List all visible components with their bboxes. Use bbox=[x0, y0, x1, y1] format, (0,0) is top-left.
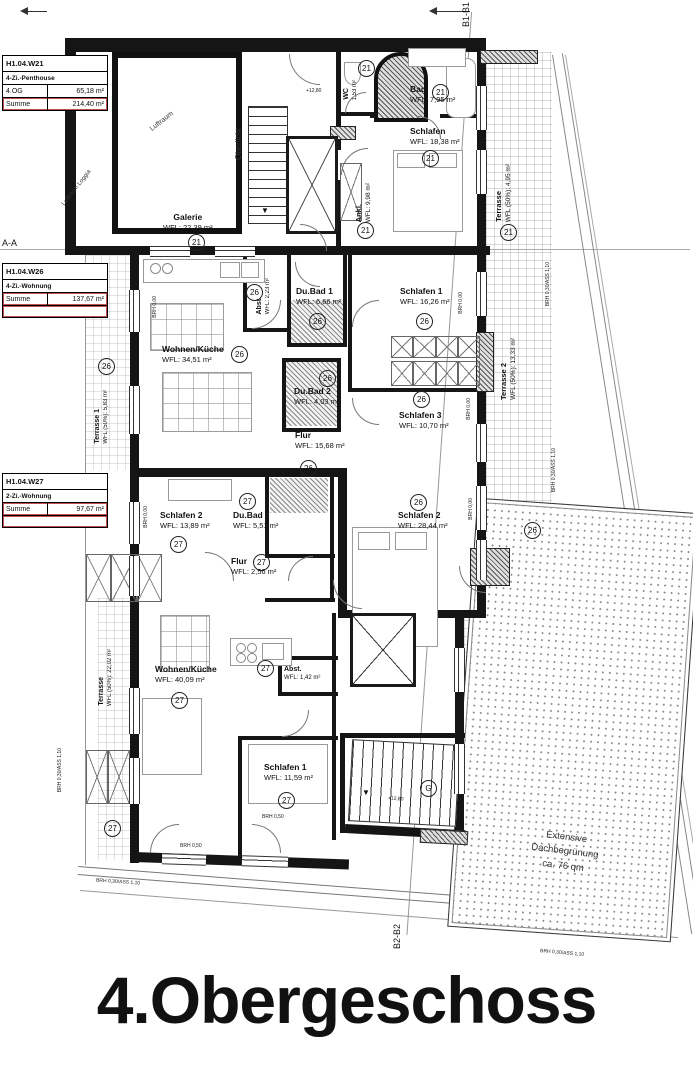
room-label-schlafen1-w26: Schlafen 1 WFL: 16,26 m² bbox=[400, 286, 450, 306]
pillow bbox=[395, 532, 427, 550]
wall bbox=[340, 733, 345, 833]
apartment-id: H1.04.W27 bbox=[3, 474, 107, 490]
door-swing bbox=[205, 552, 234, 581]
apartment-type: 4-Zi.-Penthouse bbox=[3, 72, 107, 85]
room-name: Abst. bbox=[284, 666, 320, 675]
room-name: WC bbox=[343, 88, 350, 100]
unit-badge: 21 bbox=[188, 234, 205, 251]
apartment-info-box-w27: H1.04.W27 2-Zi.-Wohnung Summe97,67 m² bbox=[2, 473, 108, 528]
room-area: WFL: 34,51 m² bbox=[162, 355, 224, 364]
sill-annotation: BRH 0,00 bbox=[466, 398, 472, 420]
stair-direction-arrow: ▼ bbox=[261, 206, 269, 215]
wall bbox=[278, 692, 338, 696]
door-swing bbox=[352, 300, 379, 327]
window bbox=[476, 486, 487, 530]
door-swing bbox=[352, 398, 379, 425]
elevator bbox=[286, 136, 338, 234]
room-area: WFL (50%): 13,33 m² bbox=[510, 338, 517, 400]
elevator bbox=[350, 613, 416, 687]
room-area: WFL: 6,66 m² bbox=[296, 297, 341, 306]
room-area: WFL: 28,44 m² bbox=[398, 521, 448, 530]
room-area: WFL: 11,59 m² bbox=[264, 773, 313, 782]
roof-greening-label: Extensive Dachbegrünung ca. 76 qm bbox=[452, 817, 678, 886]
room-area: WFL: 2,23 m² bbox=[265, 278, 271, 314]
room-area: WFL (50%): 5,83 m² bbox=[103, 390, 109, 444]
void-luftraum-outline bbox=[112, 52, 242, 234]
wardrobe-cell bbox=[413, 336, 435, 358]
section-arrowhead-b1 bbox=[429, 7, 437, 15]
unit-badge: 27 bbox=[278, 792, 295, 809]
skylight-cell bbox=[86, 750, 108, 804]
window bbox=[162, 853, 206, 866]
room-label-wc: WC 1,53 m² bbox=[343, 64, 358, 100]
room-label-dubad1-w26: Du.Bad 1 WFL: 6,66 m² bbox=[296, 286, 341, 306]
unit-badge: 27 bbox=[239, 493, 256, 510]
door-swing bbox=[150, 824, 179, 853]
room-label-schlafen1-w27: Schlafen 1 WFL: 11,59 m² bbox=[264, 762, 313, 782]
room-label-dubad-w27: Du.Bad WFL: 5,51 m² bbox=[233, 510, 278, 530]
sill-annotation: BRH 0,00 bbox=[143, 506, 149, 528]
info-row-value: 137,67 m² bbox=[48, 293, 107, 305]
floor-plan-drawing: B1-B1 A-A B2-B2 H1.04.W21 4-Zi.-Penthous… bbox=[0, 0, 693, 1080]
section-marker-b2: B2-B2 bbox=[392, 924, 402, 949]
unit-badge: 26 bbox=[231, 346, 248, 363]
room-area: WFL: 4,03 m² bbox=[294, 397, 339, 406]
apartment-info-box-w21: H1.04.W21 4-Zi.-Penthouse 4.OG65,18 m² S… bbox=[2, 55, 108, 111]
room-name: Du.Bad bbox=[233, 510, 278, 521]
wall bbox=[336, 38, 341, 116]
unit-badge: 21 bbox=[358, 60, 375, 77]
apartment-type: 4-Zi.-Wohnung bbox=[3, 280, 107, 293]
room-name: Du.Bad 2 bbox=[294, 386, 339, 397]
wardrobe-cell bbox=[436, 361, 458, 386]
room-label-terrasse1-w26: Terrasse 1 WFL (50%): 5,83 m² bbox=[94, 378, 109, 444]
wall bbox=[332, 613, 336, 703]
room-name: Terrasse bbox=[494, 191, 503, 222]
info-row-label: Summe bbox=[3, 503, 48, 515]
room-name: Terrasse 1 bbox=[94, 409, 101, 444]
apartment-info-box-w26: H1.04.W26 4-Zi.-Wohnung Summe137,67 m² bbox=[2, 263, 108, 318]
wall bbox=[130, 255, 139, 473]
room-name: Flur bbox=[295, 430, 345, 441]
room-label-wohnen-w26: Wohnen/Küche WFL: 34,51 m² bbox=[162, 344, 224, 364]
sill-annotation: BRH 0,00 bbox=[458, 292, 464, 314]
door-swing bbox=[282, 710, 309, 737]
zone-label-oberlicht: Oberlicht bbox=[234, 128, 243, 160]
parapet-annotation: BRH 0,30/ASS 1,10 bbox=[551, 448, 557, 492]
window bbox=[476, 272, 487, 316]
sill-annotation: BRH 0,00 bbox=[152, 296, 158, 318]
room-label-dubad2-w26: Du.Bad 2 WFL: 4,03 m² bbox=[294, 386, 339, 406]
dining-table bbox=[162, 372, 252, 432]
unit-badge: 26 bbox=[98, 358, 115, 375]
room-name: Wohnen/Küche bbox=[155, 664, 217, 675]
wall bbox=[332, 700, 336, 840]
skylight-cell bbox=[108, 750, 130, 804]
sink bbox=[162, 263, 173, 274]
room-area: 1,53 m² bbox=[352, 80, 358, 100]
level-annotation: +12,80 bbox=[306, 88, 321, 94]
window bbox=[242, 855, 288, 868]
unit-badge: 21 bbox=[432, 84, 449, 101]
section-marker-a: A-A bbox=[2, 238, 17, 248]
window bbox=[476, 150, 487, 194]
wall bbox=[343, 255, 347, 347]
info-row-value: 65,18 m² bbox=[48, 85, 107, 97]
room-label-terrasse2-w26: Terrasse 2 WFL (50%): 13,33 m² bbox=[499, 325, 517, 400]
info-row-empty bbox=[3, 516, 107, 527]
room-area: WFL: 22,39 m² bbox=[163, 223, 213, 232]
room-area: WFL: 9,98 m² bbox=[365, 183, 372, 222]
window bbox=[129, 688, 140, 734]
skylight-boxes bbox=[86, 554, 162, 602]
level-annotation: +12,80 bbox=[388, 795, 404, 802]
stove-burner bbox=[247, 643, 257, 653]
window bbox=[476, 424, 487, 462]
room-area: WFL (50%): 22,02 m² bbox=[107, 649, 113, 706]
room-area: WFL: 5,51 m² bbox=[233, 521, 278, 530]
sill-annotation: BRH 0,00 bbox=[468, 498, 474, 520]
room-label-ankleide: Ankl. WFL: 9,98 m² bbox=[354, 170, 372, 222]
sofa bbox=[142, 698, 202, 775]
info-row-label: Summe bbox=[3, 98, 48, 110]
door-swing bbox=[252, 824, 281, 853]
room-area: WFL: 10,70 m² bbox=[399, 421, 449, 430]
room-name: Du.Bad 1 bbox=[296, 286, 341, 297]
room-label-terrasse-w27: Terrasse WFL (50%): 22,02 m² bbox=[98, 636, 113, 706]
window bbox=[129, 386, 140, 434]
unit-badge: 26 bbox=[319, 370, 336, 387]
pillow bbox=[358, 532, 390, 550]
sink bbox=[262, 643, 284, 660]
info-row-empty bbox=[3, 306, 107, 317]
door-swing bbox=[289, 54, 320, 85]
unit-badge: 27 bbox=[253, 554, 270, 571]
drawing-title: 4.Obergeschoss bbox=[0, 962, 693, 1038]
room-area: WFL (50%): 4,95 m² bbox=[505, 164, 512, 222]
parapet-annotation: BRH 0,30/ASS 1,10 bbox=[57, 748, 63, 792]
unit-badge: 26 bbox=[524, 522, 541, 539]
window bbox=[129, 502, 140, 544]
window bbox=[129, 556, 140, 596]
unit-badge: 26 bbox=[246, 284, 263, 301]
room-area: WFL: 13,89 m² bbox=[160, 521, 210, 530]
pillow bbox=[397, 153, 425, 168]
wardrobe bbox=[391, 336, 480, 358]
room-label-schlafen2-w26: Schlafen 2 WFL: 28,44 m² bbox=[398, 510, 448, 530]
door-swing bbox=[288, 556, 313, 581]
window bbox=[150, 246, 190, 257]
room-area: WFL: 1,42 m² bbox=[284, 675, 320, 683]
wall bbox=[238, 736, 242, 858]
room-area: WFL: 2,56 m² bbox=[231, 567, 276, 576]
wall bbox=[238, 736, 338, 740]
wardrobe-cell bbox=[436, 336, 458, 358]
info-row-value: 97,67 m² bbox=[48, 503, 107, 515]
info-row-value: 214,40 m² bbox=[48, 98, 107, 110]
room-label-schlafen-penthouse: Schlafen WFL: 18,38 m² bbox=[410, 126, 460, 146]
wardrobe-cell bbox=[458, 361, 480, 386]
wall-hatched bbox=[420, 829, 469, 845]
room-name: Schlafen 3 bbox=[399, 410, 449, 421]
wardrobe-sideboard bbox=[168, 479, 232, 501]
staircase bbox=[348, 739, 460, 827]
info-row-label: 4.OG bbox=[3, 85, 48, 97]
room-area: WFL: 16,26 m² bbox=[400, 297, 450, 306]
window bbox=[215, 246, 255, 257]
stair-direction-arrow: ▼ bbox=[362, 788, 370, 797]
room-label-schlafen3-w26: Schlafen 3 WFL: 10,70 m² bbox=[399, 410, 449, 430]
wall bbox=[243, 328, 291, 332]
skylight-cell bbox=[137, 554, 162, 602]
unit-badge: 27 bbox=[171, 692, 188, 709]
unit-badge: 21 bbox=[422, 150, 439, 167]
room-name: Schlafen 2 bbox=[160, 510, 210, 521]
room-label-flur-w26: Flur WFL: 15,68 m² bbox=[295, 430, 345, 450]
unit-badge: 27 bbox=[170, 536, 187, 553]
room-label-schlafen2-w27: Schlafen 2 WFL: 13,89 m² bbox=[160, 510, 210, 530]
door-swing bbox=[295, 262, 320, 287]
wardrobe bbox=[391, 361, 480, 386]
room-label-abstellraum-w27: Abst. WFL: 1,42 m² bbox=[284, 666, 320, 682]
sill-annotation: BRH 0,50 bbox=[262, 814, 284, 820]
window bbox=[129, 758, 140, 804]
stove-burner bbox=[236, 643, 246, 653]
skylight-boxes bbox=[86, 750, 130, 804]
room-name: Schlafen 1 bbox=[264, 762, 313, 773]
sink bbox=[150, 263, 161, 274]
window bbox=[454, 648, 465, 692]
apartment-type: 2-Zi.-Wohnung bbox=[3, 490, 107, 503]
wall-hatched bbox=[480, 50, 538, 64]
window bbox=[454, 744, 465, 794]
stairwell-badge: G bbox=[420, 780, 437, 797]
unit-badge: 21 bbox=[500, 224, 517, 241]
room-area: WFL: 18,38 m² bbox=[410, 137, 460, 146]
wall bbox=[477, 38, 486, 250]
bathroom-floor-tiles bbox=[270, 478, 328, 513]
parapet-annotation: BRH 0,30/ASS 1,10 bbox=[540, 948, 585, 958]
room-name: Terrasse 2 bbox=[499, 363, 508, 400]
wardrobe-cell bbox=[391, 361, 413, 386]
unit-badge: 26 bbox=[309, 313, 326, 330]
info-row-label: Summe bbox=[3, 293, 48, 305]
stove-burner bbox=[236, 653, 246, 663]
unit-badge: 27 bbox=[257, 660, 274, 677]
parapet-annotation: BRH 0,30/ASS 1,10 bbox=[545, 262, 551, 306]
room-name: Schlafen 1 bbox=[400, 286, 450, 297]
room-area: WFL: 15,68 m² bbox=[295, 441, 345, 450]
room-name: Ankl. bbox=[354, 204, 363, 222]
wardrobe-cell bbox=[413, 361, 435, 386]
wall bbox=[340, 733, 465, 738]
wardrobe-cell bbox=[458, 336, 480, 358]
wall bbox=[287, 343, 347, 347]
room-name: Schlafen bbox=[410, 126, 460, 137]
window bbox=[476, 540, 487, 580]
room-name: Galerie bbox=[163, 212, 213, 223]
apartment-id: H1.04.W21 bbox=[3, 56, 107, 72]
unit-badge: 26 bbox=[410, 494, 427, 511]
unit-badge: 26 bbox=[416, 313, 433, 330]
wall bbox=[65, 246, 490, 255]
section-arrowhead-top-left bbox=[20, 7, 28, 15]
wall bbox=[265, 598, 335, 602]
room-name: Schlafen 2 bbox=[398, 510, 448, 521]
unit-badge: 21 bbox=[357, 222, 374, 239]
sofa bbox=[408, 48, 466, 67]
skylight-cell bbox=[86, 554, 111, 602]
wardrobe-cell bbox=[391, 336, 413, 358]
sill-annotation: BRH 0,50 bbox=[180, 843, 202, 849]
room-label-wohnen-w27: Wohnen/Küche WFL: 40,09 m² bbox=[155, 664, 217, 684]
unit-badge: 27 bbox=[104, 820, 121, 837]
unit-badge: 26 bbox=[413, 391, 430, 408]
room-label-galerie: Galerie WFL: 22,39 m² bbox=[163, 212, 213, 232]
section-arrow-line-top-left bbox=[27, 11, 47, 12]
window bbox=[129, 290, 140, 332]
unit-badge: 26 bbox=[300, 460, 317, 477]
wall bbox=[348, 388, 481, 392]
stove bbox=[220, 262, 240, 278]
room-area: WFL: 40,09 m² bbox=[155, 675, 217, 684]
room-name: Wohnen/Küche bbox=[162, 344, 224, 355]
stove-burner bbox=[247, 653, 257, 663]
room-name: Terrasse bbox=[98, 677, 105, 706]
window bbox=[476, 86, 487, 130]
room-label-terrasse-penthouse: Terrasse WFL (50%): 4,95 m² bbox=[494, 150, 512, 222]
section-marker-b1: B1-B1 bbox=[461, 2, 471, 27]
apartment-id: H1.04.W26 bbox=[3, 264, 107, 280]
